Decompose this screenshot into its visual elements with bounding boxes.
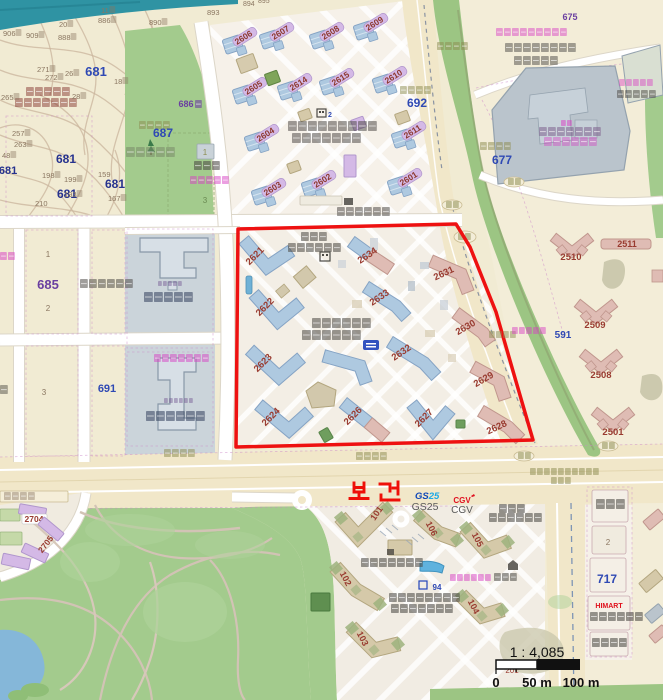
svg-text:198: 198 <box>42 171 55 180</box>
svg-text:94: 94 <box>433 583 442 592</box>
svg-text:2509: 2509 <box>584 320 605 331</box>
svg-text:687: 687 <box>153 126 173 140</box>
svg-text:894: 894 <box>243 1 255 8</box>
svg-text:2: 2 <box>46 304 51 313</box>
svg-text:685: 685 <box>37 277 59 292</box>
svg-text:895: 895 <box>258 0 270 5</box>
svg-text:HIMART: HIMART <box>595 603 623 610</box>
svg-text:893: 893 <box>207 8 220 17</box>
svg-text:48: 48 <box>2 151 10 160</box>
svg-text:686: 686 <box>178 99 193 109</box>
svg-text:717: 717 <box>597 572 617 586</box>
svg-text:692: 692 <box>407 96 427 110</box>
svg-text:18: 18 <box>114 77 122 86</box>
svg-text:2510: 2510 <box>560 252 581 263</box>
svg-text:2511: 2511 <box>617 239 637 249</box>
svg-text:681: 681 <box>0 165 17 177</box>
svg-text:675: 675 <box>562 12 577 22</box>
svg-text:263: 263 <box>14 140 27 149</box>
svg-text:1: 1 <box>203 148 208 157</box>
svg-text:691: 691 <box>98 383 116 395</box>
svg-text:888: 888 <box>58 33 71 42</box>
svg-text:3: 3 <box>203 196 208 205</box>
svg-text:193: 193 <box>64 190 77 199</box>
svg-text:50 m: 50 m <box>522 675 552 690</box>
svg-text:11: 11 <box>101 6 109 15</box>
svg-text:CGV: CGV <box>451 505 473 516</box>
svg-text:906: 906 <box>3 29 16 38</box>
svg-text:1: 1 <box>46 250 51 259</box>
svg-text:2501: 2501 <box>602 427 624 438</box>
svg-text:272: 272 <box>45 73 58 82</box>
svg-text:886: 886 <box>98 16 111 25</box>
svg-text:681: 681 <box>105 177 125 191</box>
svg-text:0: 0 <box>492 675 499 690</box>
svg-text:591: 591 <box>555 330 572 341</box>
svg-text:26: 26 <box>65 69 73 78</box>
svg-text:1 : 4,085: 1 : 4,085 <box>510 644 565 660</box>
svg-text:CGV: CGV <box>453 496 471 505</box>
svg-text:681: 681 <box>85 64 107 79</box>
svg-text:20: 20 <box>59 20 67 29</box>
svg-text:681: 681 <box>56 152 76 166</box>
svg-text:159: 159 <box>98 170 111 179</box>
svg-text:28: 28 <box>72 92 80 101</box>
svg-text:257: 257 <box>12 129 25 138</box>
svg-text:677: 677 <box>492 153 512 167</box>
svg-text:GS25: GS25 <box>412 501 439 513</box>
svg-text:167: 167 <box>108 194 121 203</box>
svg-text:210: 210 <box>35 199 48 208</box>
svg-text:100 m: 100 m <box>563 675 600 690</box>
svg-text:890: 890 <box>149 18 162 27</box>
svg-text:265: 265 <box>1 93 14 102</box>
svg-text:2: 2 <box>606 538 611 547</box>
svg-text:2: 2 <box>328 112 332 119</box>
svg-text:2508: 2508 <box>590 370 611 381</box>
svg-text:3: 3 <box>42 388 47 397</box>
svg-text:199: 199 <box>64 175 77 184</box>
svg-text:909: 909 <box>26 31 39 40</box>
